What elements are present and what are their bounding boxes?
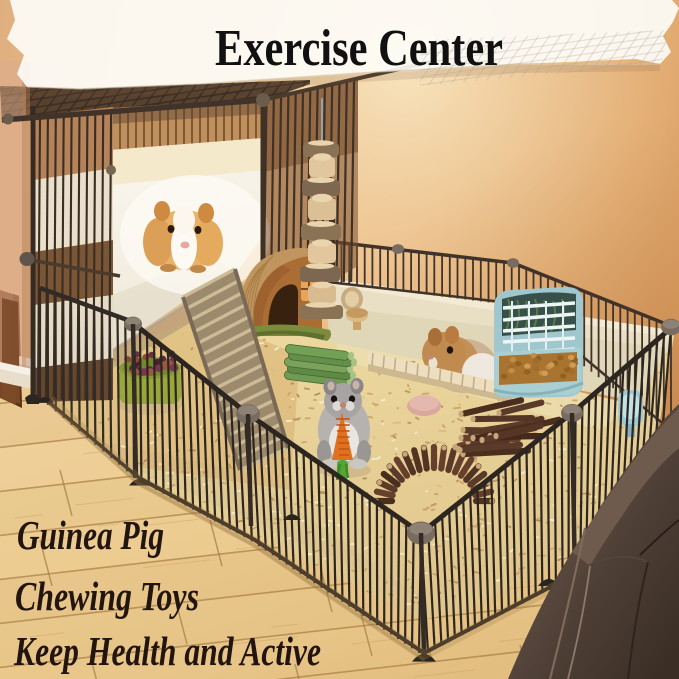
svg-text:Guinea Pig: Guinea Pig: [17, 512, 164, 558]
svg-text:Exercise Center: Exercise Center: [215, 20, 503, 77]
svg-text:Keep Health and Active: Keep Health and Active: [13, 628, 321, 674]
svg-text:Chewing Toys: Chewing Toys: [15, 573, 199, 619]
